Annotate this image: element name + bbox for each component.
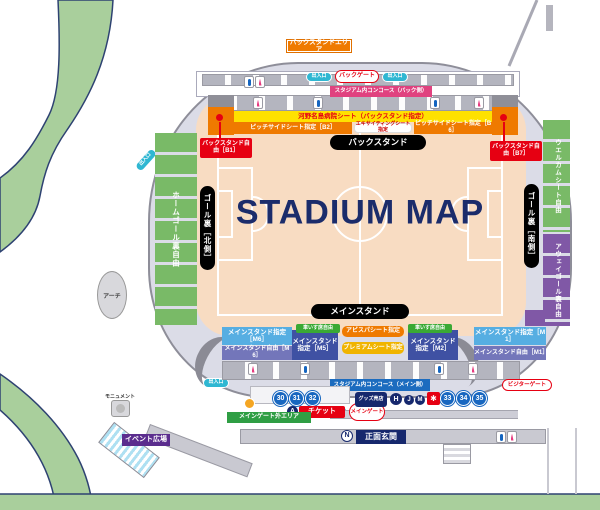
back-corner-block-left xyxy=(208,107,234,135)
back-corner-block-right xyxy=(492,107,518,135)
female-figure xyxy=(257,100,260,107)
female-figure xyxy=(478,100,481,107)
back-corner-cap-right xyxy=(492,95,518,107)
male-figure xyxy=(434,100,437,107)
front-entrance-letter-circle: N xyxy=(341,430,353,442)
toilet-icon-male xyxy=(313,97,323,109)
pitchside-b2-bar: ピッチサイドシート指定［B2］ xyxy=(234,122,352,134)
back-concourse-label: スタジアム内コンコース（バック側） xyxy=(330,86,432,97)
toilet-icon-female xyxy=(507,431,517,443)
park-ribbon-top-left xyxy=(0,0,113,252)
pitchside-b6-bar: ピッチサイドシート指定［B6］ xyxy=(414,122,492,134)
visitor-gate-pill: ビジターゲート xyxy=(502,379,552,391)
exciting-seat-label: エキサイティングシート指定 xyxy=(354,123,412,133)
marker-dot-b7 xyxy=(500,114,507,121)
goal-box-left xyxy=(217,190,233,238)
backstand-pill: バックスタンド xyxy=(330,135,426,150)
mainstand-pill: メインスタンド xyxy=(311,304,409,319)
gate-number-33: 33 xyxy=(440,391,455,406)
goal-box-right xyxy=(487,190,503,238)
backstand-free-b1-label: バックスタンド自由［B1］ xyxy=(200,138,252,158)
male-figure xyxy=(304,366,307,373)
toilet-icon-male xyxy=(496,431,506,443)
gate-number-31: 31 xyxy=(289,391,304,406)
m1-free-label: メインスタンド自由［M1］ xyxy=(474,346,546,360)
goods-shop-label: グッズ売店 xyxy=(355,392,387,407)
front-entrance-label: 正面玄関 xyxy=(356,430,406,444)
female-figure xyxy=(472,366,475,373)
stadium-map: STADIUM MAP 河野名島病院シート（バックスタンド指定） ピッチサイドシ… xyxy=(0,0,600,510)
spot-letter-m: M xyxy=(415,395,425,405)
gate-number-30: 30 xyxy=(273,391,288,406)
backstand-free-b7-label: バックスタンド自由［B7］ xyxy=(490,141,542,161)
toilet-icon-female xyxy=(248,363,258,375)
main-gate-outer-area-label: メインゲート外エリア xyxy=(227,412,311,423)
event-plaza-label: イベント広場 xyxy=(122,434,170,446)
monument-shape xyxy=(111,400,130,417)
welcome-seat-block: ウエルカムシート自由 xyxy=(543,120,570,232)
spot-letter-j: J xyxy=(404,395,414,405)
park-ribbon-bottom-left xyxy=(0,374,93,510)
arch-shape: アーチ xyxy=(97,271,127,319)
toilet-icon-male xyxy=(434,363,444,375)
monument-label: モニュメント xyxy=(96,393,144,400)
female-figure xyxy=(252,366,255,373)
m6-free-label: メインスタンド自由［M6］ xyxy=(222,346,292,360)
toilet-icon-female xyxy=(474,97,484,109)
goal-south-pill: ゴール裏［南側］ xyxy=(524,184,539,268)
wheelchair-label-left: 車いす席自由 xyxy=(296,324,340,333)
monument-circle xyxy=(116,404,125,413)
marker-dot-b1 xyxy=(216,114,223,121)
toilet-icon-male xyxy=(300,363,310,375)
stairs-front xyxy=(443,444,471,464)
gate-number-35: 35 xyxy=(472,391,487,406)
map-title: STADIUM MAP xyxy=(236,194,484,233)
toilet-icon-male xyxy=(244,76,254,88)
park-band-bottom xyxy=(0,494,600,510)
goods-letter-circle: H xyxy=(390,393,402,405)
arch-label: アーチ xyxy=(103,291,121,300)
backstand-area-badge: バックスタンドエリア xyxy=(287,40,351,52)
male-figure xyxy=(438,366,441,373)
m2-reserved-label: メインスタンド指定［M2］ xyxy=(408,330,458,360)
male-figure xyxy=(317,100,320,107)
avispa-seat-label: アビスパシート指定 xyxy=(342,326,404,337)
entrance-pill-back-right: 出入口 xyxy=(382,72,408,82)
toilet-icon-male xyxy=(430,97,440,109)
toilet-icon-female xyxy=(468,363,478,375)
red-shop-logo: ✱ xyxy=(427,392,440,405)
m5-reserved-label: メインスタンド指定［M5］ xyxy=(292,330,338,360)
home-goal-free-block: ホームゴール裏自由 xyxy=(155,133,197,325)
gate-number-34: 34 xyxy=(456,391,471,406)
male-figure xyxy=(500,434,503,441)
male-figure xyxy=(248,79,251,86)
back-gate-pill: バックゲート xyxy=(335,70,379,83)
away-goal-free-block: アウェイゴール裏自由 xyxy=(543,234,570,326)
toilet-icon-female xyxy=(255,76,265,88)
toilet-icon-female xyxy=(253,97,263,109)
wheelchair-label-right: 車いす席自由 xyxy=(408,324,452,333)
female-figure xyxy=(259,79,262,86)
orange-marker xyxy=(244,398,255,409)
road-line-top-right xyxy=(509,0,537,66)
marker-line-b1 xyxy=(219,122,221,138)
away-corner-block xyxy=(525,310,545,326)
marker-line-b7 xyxy=(503,122,505,141)
entrance-pill-back-left: 出入口 xyxy=(306,72,332,82)
m1-reserved-label: メインスタンド指定［M1］ xyxy=(474,327,546,345)
gate-number-32: 32 xyxy=(305,391,320,406)
post-top-right xyxy=(546,5,553,31)
back-corner-cap-left xyxy=(208,95,234,107)
goal-north-pill: ゴール裏［北側］ xyxy=(200,186,215,270)
premium-seat-label: プレミアムシート指定 xyxy=(342,342,404,354)
female-figure xyxy=(511,434,514,441)
m6-reserved-label: メインスタンド指定［M6］ xyxy=(222,327,292,345)
